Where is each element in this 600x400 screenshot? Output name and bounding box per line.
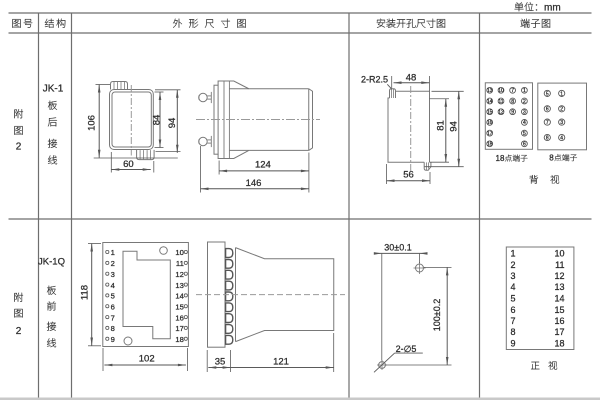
svg-text:mm: mm [544,3,561,14]
svg-text:11: 11 [498,99,503,105]
svg-text:8: 8 [511,99,514,105]
svg-text:2: 2 [523,99,526,105]
svg-text:35: 35 [215,357,226,368]
svg-text:81: 81 [436,120,447,131]
svg-text:13: 13 [175,281,183,290]
svg-text:94: 94 [167,118,178,129]
svg-text:12: 12 [498,110,504,116]
svg-text:14: 14 [554,294,564,304]
svg-text:94: 94 [448,121,459,132]
svg-text:17: 17 [175,324,183,333]
svg-text:12: 12 [175,270,183,279]
svg-text:1: 1 [523,88,526,94]
svg-text:7: 7 [111,313,115,322]
svg-text:3: 3 [511,271,516,281]
svg-text:124: 124 [255,160,271,171]
svg-text:15: 15 [175,302,183,311]
svg-text:48: 48 [406,72,417,83]
svg-text:6: 6 [511,305,516,315]
svg-text:15: 15 [487,110,493,116]
svg-text:30±0.1: 30±0.1 [384,243,411,253]
svg-text:14: 14 [487,99,493,105]
svg-text:8: 8 [111,324,115,333]
svg-text:6: 6 [523,142,526,148]
svg-text:1: 1 [511,249,516,259]
svg-text:9: 9 [511,110,514,116]
svg-text:6: 6 [546,107,549,113]
svg-text:3: 3 [111,270,115,279]
svg-text:9: 9 [511,339,516,349]
svg-text:8: 8 [546,135,549,141]
svg-text:5: 5 [546,91,549,97]
svg-text:18: 18 [554,339,564,349]
svg-text:60: 60 [123,159,134,170]
svg-text:13: 13 [487,88,493,94]
svg-text:11: 11 [555,260,564,270]
svg-text:9: 9 [111,335,115,344]
svg-text:16: 16 [554,316,564,326]
svg-text:18: 18 [175,335,183,344]
svg-text:6: 6 [111,302,115,311]
svg-text:12: 12 [554,271,564,281]
svg-text:17: 17 [487,131,493,137]
svg-text:2: 2 [560,107,563,113]
svg-text:102: 102 [139,354,155,365]
svg-text:7: 7 [511,88,514,94]
svg-text:7: 7 [511,316,516,326]
svg-text:18: 18 [496,154,505,163]
svg-text:JK-1: JK-1 [43,84,64,95]
svg-text:1: 1 [111,248,115,257]
svg-text:2: 2 [111,259,115,268]
svg-text:15: 15 [554,305,564,315]
svg-text:13: 13 [554,282,564,292]
svg-text:5: 5 [523,131,526,137]
svg-text:JK-1Q: JK-1Q [38,257,65,268]
svg-text:121: 121 [273,357,289,368]
svg-text:3: 3 [523,110,526,116]
svg-text:146: 146 [246,178,262,189]
svg-text:118: 118 [79,285,90,300]
svg-text:4: 4 [560,135,563,141]
svg-text:10: 10 [498,88,504,94]
svg-text:8: 8 [511,327,516,337]
svg-text:11: 11 [176,259,184,268]
svg-text:1: 1 [560,91,563,97]
svg-text:10: 10 [554,249,564,259]
svg-text:84: 84 [151,115,162,126]
svg-text:16: 16 [175,313,183,322]
svg-text:18: 18 [487,142,493,148]
svg-text:56: 56 [403,170,414,181]
svg-text:2: 2 [511,260,516,270]
svg-text:3: 3 [560,120,563,126]
svg-text:5: 5 [511,294,516,304]
svg-text:4: 4 [111,281,115,290]
svg-text:14: 14 [175,292,183,301]
svg-text:16: 16 [487,120,493,126]
svg-text:2: 2 [16,142,22,153]
svg-text:7: 7 [546,120,549,126]
svg-text:100±0.2: 100±0.2 [432,299,442,331]
svg-text:5: 5 [111,292,115,301]
svg-text:2-∅5: 2-∅5 [396,344,417,354]
svg-text:10: 10 [175,248,183,257]
svg-text:2: 2 [16,326,22,337]
svg-text:8: 8 [549,154,554,163]
svg-text:17: 17 [554,327,564,337]
svg-text:4: 4 [511,282,516,292]
svg-text:2-R2.5: 2-R2.5 [361,75,388,85]
svg-text:4: 4 [523,120,526,126]
svg-text:106: 106 [87,115,98,131]
